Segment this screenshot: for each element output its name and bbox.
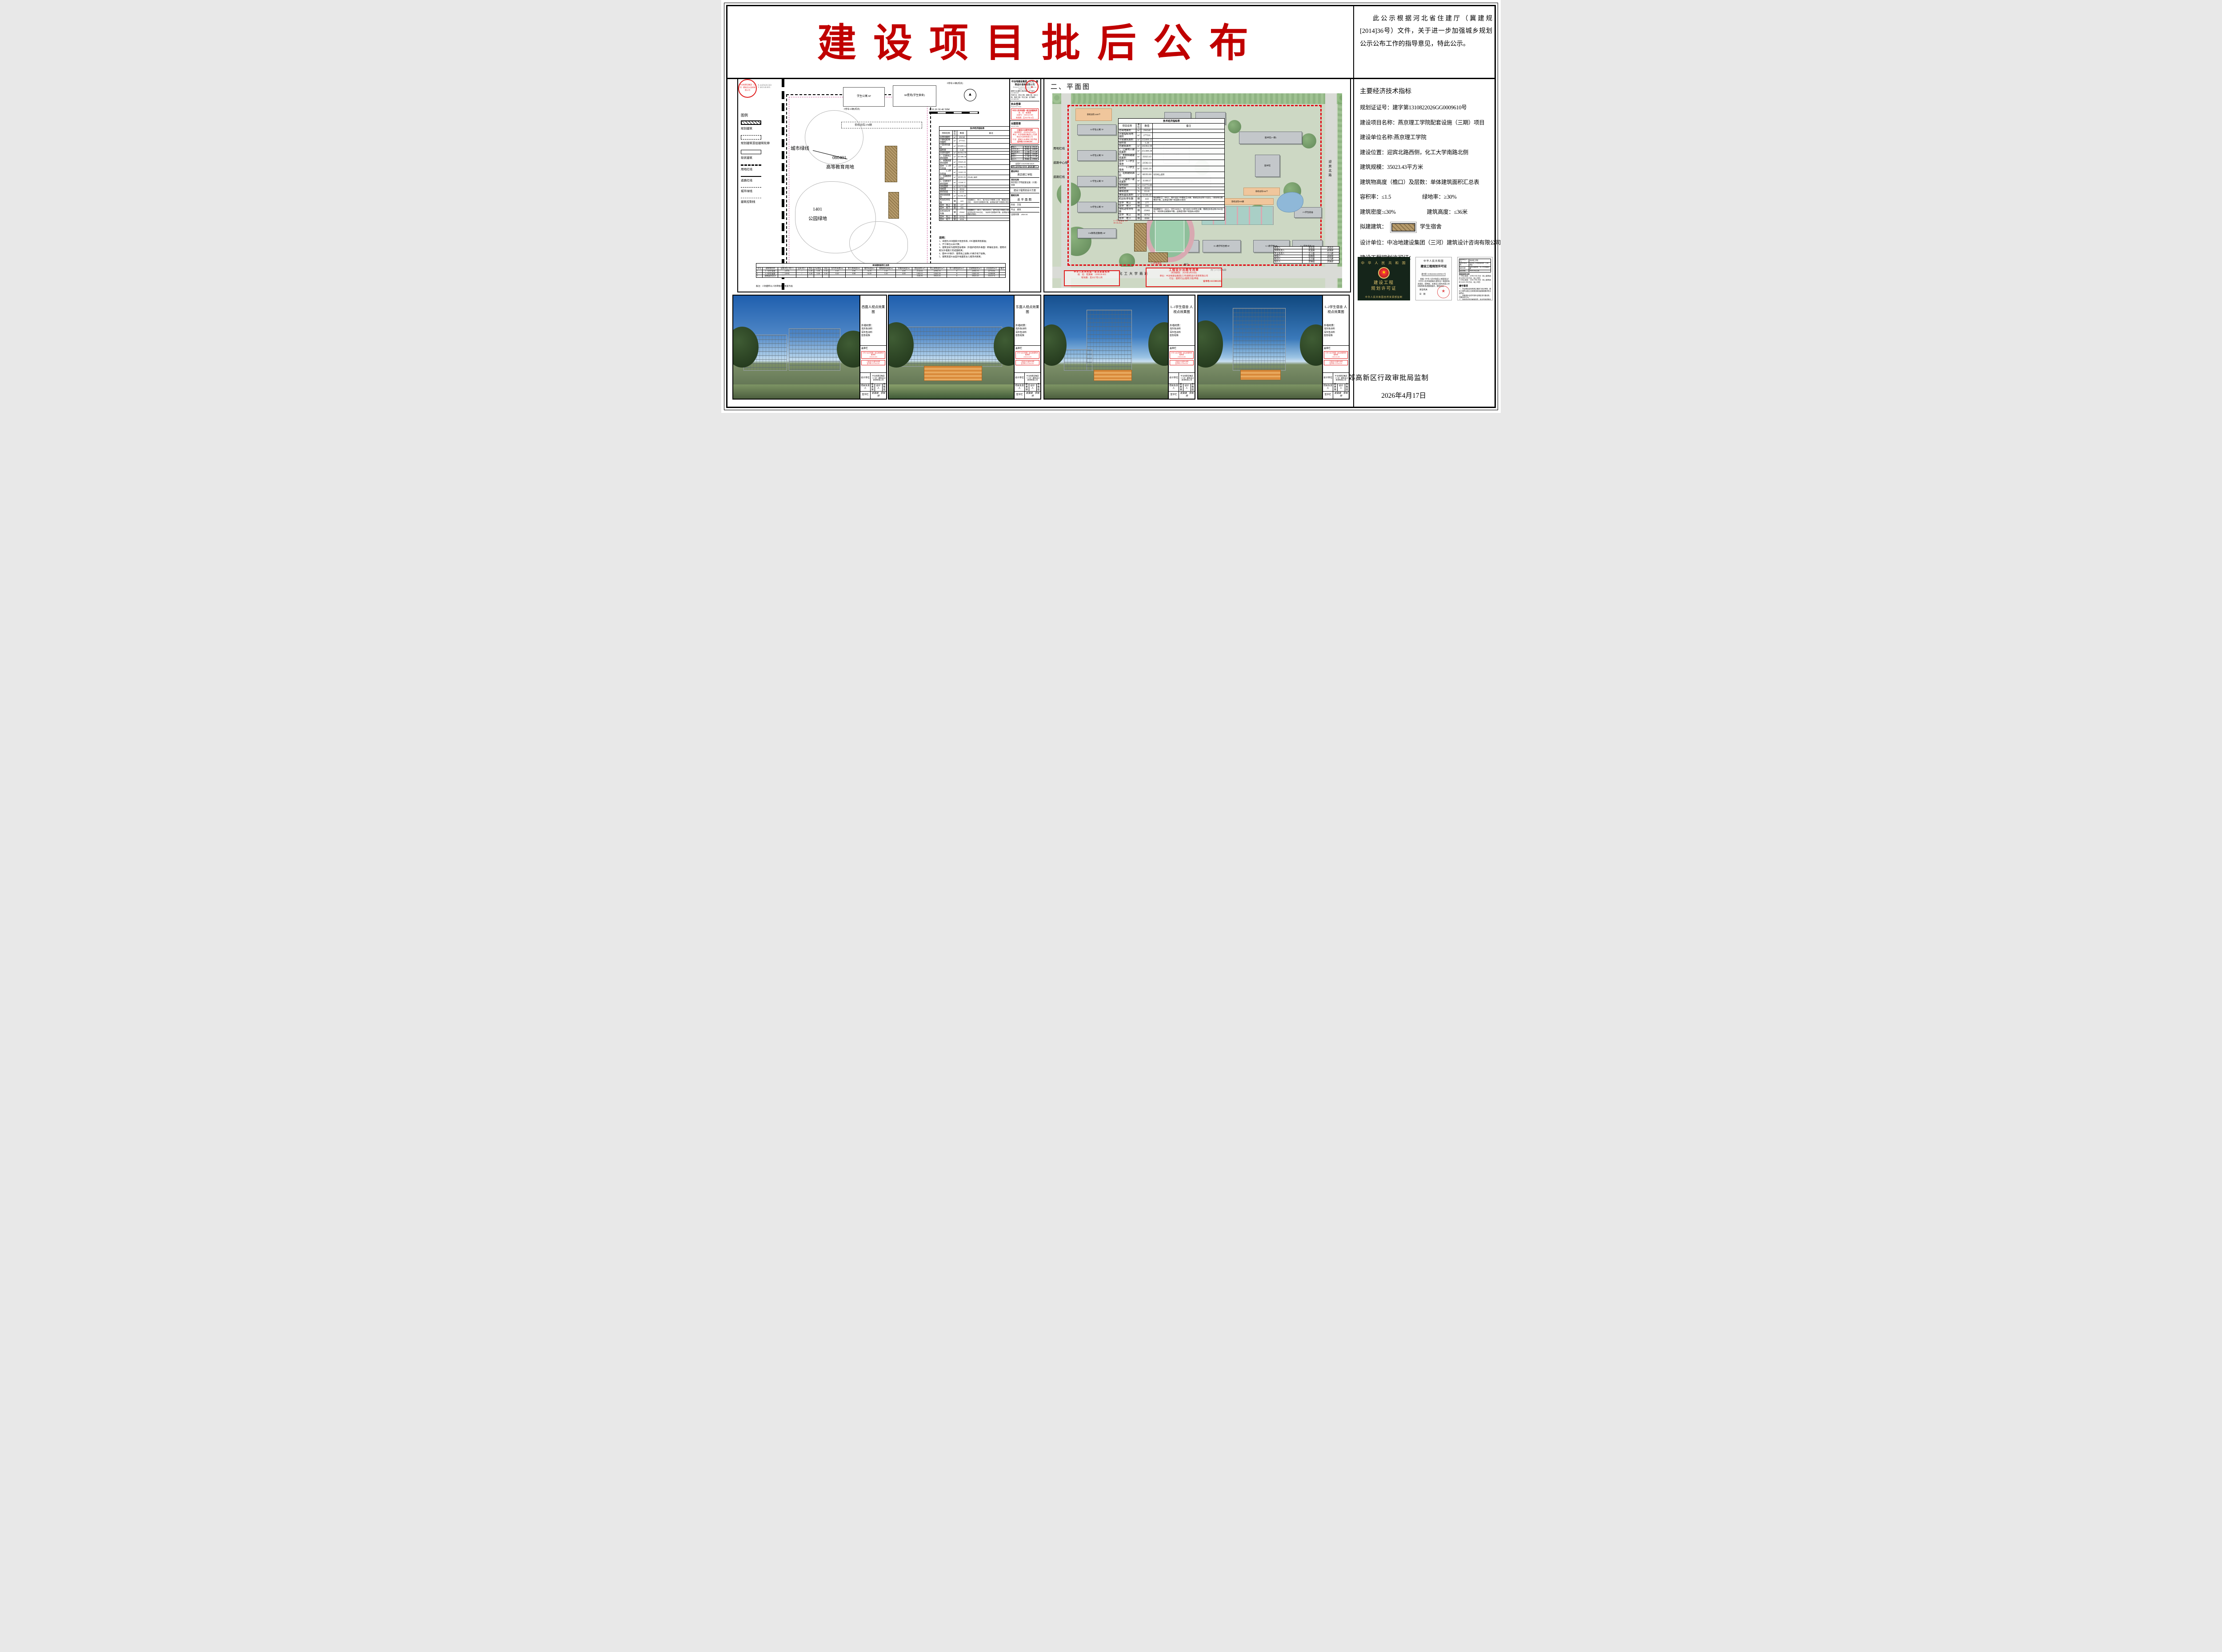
main-indicators-panel: 主要经济技术指标 规划证证号：建字第1310822026GG0009610号 建… — [1360, 86, 1495, 268]
national-emblem-icon: ★ — [1378, 267, 1390, 279]
release-stamp-mini: 工程设计出图专用章证书号:A113001205 — [1170, 360, 1194, 366]
city-green-line-label: 城市绿线 — [791, 145, 809, 152]
architect-stamp-plan: 中华人民共和国一级注册建筑师 姓 名：崔美婧 1300120-005 有效期：至… — [1064, 270, 1120, 286]
rendering-photo — [1198, 296, 1322, 399]
orange-steps — [924, 366, 982, 381]
proposed-label: 拟建建筑： — [1360, 224, 1387, 230]
master-plan: 非机动车1400个 A5学生公寓 7F A6学生公寓 7F A7学生公寓 7F … — [1052, 93, 1342, 288]
release-stamp-mini: 工程设计出图专用章证书号:A113001205 — [861, 360, 885, 366]
countersign-block: 会签栏 COUNTER SIGN 建筑结构给排水暖通电气 — [1010, 162, 1039, 169]
rendering-caption: 东面人视点效果图 外墙材质：浅灰色涂料深灰色涂料蓝色铝板 盖章栏 中华人民共和国… — [1014, 296, 1040, 399]
architect-stamp-mini: 中华人民共和国一级注册建筑师崔美婧1300120-005 — [1324, 351, 1348, 359]
bld-jingyuan: 11#静苑(后勤楼) 6F — [1077, 228, 1116, 238]
soccer-field — [1155, 216, 1184, 252]
building-mass — [789, 328, 840, 371]
proposed-building-L2 — [888, 192, 899, 219]
south-road-label: 化工大学南路 — [1119, 271, 1150, 276]
roadline-label: 道路红线 — [1053, 174, 1065, 179]
release-stamp-mini: 工程设计出图专用章证书号:A113001205 — [1324, 360, 1348, 366]
green-belt-north — [1052, 93, 1342, 104]
discipline-row: 专业 建筑 — [1010, 208, 1039, 212]
parcel-use-label: 高等教育用地 — [826, 164, 854, 170]
phase-row: 阶段 方案 — [1010, 203, 1039, 208]
design-institute-seal: 中冶地建设集团（三河）建筑设计咨询有限公司 — [738, 79, 757, 98]
park-code-label: 1401 — [813, 207, 822, 212]
rendering-east: 东面人视点效果图 外墙材质：浅灰色涂料深灰色涂料蓝色铝板 盖章栏 中华人民共和国… — [888, 295, 1041, 400]
supervisor-line: 燕郊高新区行政审批局监制 — [1341, 372, 1429, 382]
tree — [1300, 324, 1322, 366]
rendering-photo — [1044, 296, 1168, 399]
project-name: 建设项目名称：燕京理工学院配套设施（三期）项目 — [1360, 118, 1495, 126]
cover-footer: 中华人民共和国自然资源部监制 — [1358, 296, 1410, 299]
legend-swatch-dashed — [741, 135, 761, 140]
building-summary-table: 单体建筑面积汇总表序号建筑物名称层数(地上/地下)层高:地下首层标准层顶层室内外… — [756, 263, 1006, 278]
notes-block: 说明： 1、本图为2000国家大地坐标系, 1985国家高程基准； 2、尺寸单位… — [939, 236, 1007, 258]
notice-paragraph: 此公示根据河北省住建厅（冀建规[2014]36号）文件，关于进一步加强城乡规划公… — [1360, 12, 1492, 50]
indicators-heading: 主要经济技术指标 — [1360, 86, 1495, 96]
right-panel-divider — [1353, 5, 1354, 408]
cover-country: 中 华 人 民 共 和 国 — [1358, 260, 1410, 265]
red-seal-icon: ★ — [1437, 286, 1450, 298]
bike-parking-566: 非机动车566个 — [1243, 188, 1280, 196]
rendering-photo — [733, 296, 859, 399]
summary-note: 备注：人防面积以人防审批部门批复为准 — [756, 285, 793, 288]
building-scale: 建筑规模：35023.43平方米 — [1360, 162, 1495, 171]
legend-item: 城市绿线 — [741, 187, 783, 193]
bld-A8: A8学生公寓 7F — [1077, 202, 1116, 212]
park-use-label: 公园绿地 — [808, 215, 827, 222]
release-stamp-plan: 工程设计出图专用章 (有效期至：2026年4月30日) 单位：中冶地建设集团(三… — [1146, 268, 1222, 287]
proposed-line: 拟建建筑：学生宿舍 — [1360, 222, 1495, 232]
legend-title: 图例 — [741, 113, 783, 118]
architect-stamp: 中华人民共和国一级注册建筑师 姓 名：崔美婧 注册号：1300120-005 有… — [1011, 108, 1039, 120]
countersign-cells: 建筑结构给排水暖通电气 — [1011, 165, 1039, 168]
proposed-value: 学生宿舍 — [1420, 224, 1442, 230]
site-plan-drawing: X 4429420.583Y 482148.805 图例 规划建筑 规划建筑首层… — [737, 78, 1041, 292]
proposed-L1-building — [1134, 223, 1147, 252]
indicator-table-main: 技术经济指标表项目名称单位数值备注总用地面积m²294540计算指标用地面积m²… — [1118, 118, 1225, 220]
page-title: 建设项目批后公布 — [775, 12, 1308, 68]
legend-item: 规划建筑首层建筑轮廓 — [741, 135, 783, 145]
coord-y: Y 482148.805 — [758, 87, 770, 89]
release-stamp-block: 出图签章 Release Stamp 工程设计出图专用章 (有效期至：2026年… — [1010, 121, 1039, 145]
far: 容积率：≤1.5 — [1360, 194, 1391, 200]
bld-library: 图书馆 — [1255, 155, 1280, 177]
architect-stamp-mini: 中华人民共和国一级注册建筑师崔美婧1300120-005 — [1015, 351, 1039, 359]
project-block: 项目名称燕京理工学院配套设施（三期）项目 — [1010, 178, 1039, 188]
registration-stamp-block: 执业签章 Registration Stamp 中华人民共和国一级注册建筑师 姓… — [1010, 101, 1039, 121]
legend-item: 道路红线 — [741, 176, 783, 182]
owner-block: 建设单位燕京理工学院 — [1010, 169, 1039, 178]
redline-label: 用地红线 — [1053, 146, 1065, 150]
gate-label: 校门 — [1184, 263, 1188, 266]
proposed-L2-building — [1148, 252, 1168, 262]
bld-library1: 图书馆(一期) — [1239, 132, 1302, 144]
building-tower — [1233, 308, 1286, 371]
company-block: ★ 中冶地建设集团（三河）建筑设计咨询有限公司 Zhongyedi Constr… — [1010, 79, 1039, 101]
ground — [1198, 384, 1322, 399]
legend-swatch-hatch — [741, 120, 761, 125]
building-mass — [901, 327, 1002, 367]
architect-stamp-mini: 中华人民共和国一级注册建筑师崔美婧1300120-005 — [861, 351, 885, 359]
legend-swatch-greenline — [741, 187, 761, 188]
density: 建筑密度:≤30% — [1360, 209, 1396, 215]
density-height-pair: 建筑密度:≤30%建筑高度：≤36米 — [1360, 207, 1495, 216]
legend-swatch-redline — [741, 164, 761, 166]
ground — [733, 384, 859, 399]
bld-A6: A6学生公寓 7F — [1077, 150, 1116, 161]
far-green-pair: 容积率：≤1.5绿地率：≥30% — [1360, 192, 1495, 200]
signature-table: 审定人李志忠李志忠项目负责人崔美婧崔美婧专业负责人王小晨王小晨审核人张晓梅张晓梅… — [1010, 145, 1039, 162]
rendering-caption: 西面人视点效果图 外墙材质：浅灰色涂料深灰色涂料蓝色铝板 盖章栏 中华人民共和国… — [859, 296, 886, 399]
bld-A5: A5学生公寓 7F — [1077, 124, 1116, 135]
rendering-caption: L-2学生宿舍 人视点效果图 外墙材质：浅灰色涂料深灰色涂料蓝色铝板 盖章栏 中… — [1322, 296, 1349, 399]
parking18-label: P停车18辆(现状) — [844, 108, 860, 111]
release-stamp: 工程设计出图专用章 (有效期至：2026年4月30日) 单位：中冶地建设集团(三… — [1011, 128, 1039, 144]
orange-steps — [1094, 370, 1131, 381]
bld-E2: E-2教学综合楼 8F — [1203, 240, 1241, 252]
legend-item: 建筑控制线 — [741, 198, 783, 204]
rendering-L2: L-2学生宿舍 人视点效果图 外墙材质：浅灰色涂料深灰色涂料蓝色铝板 盖章栏 中… — [1197, 295, 1350, 400]
north-compass-icon — [964, 89, 976, 101]
contour-line — [849, 221, 908, 267]
company-round-stamp: ★ — [1025, 80, 1039, 93]
rendering-west: 西面人视点效果图 外墙材质：浅灰色涂料深灰色涂料蓝色铝板 盖章栏 中华人民共和国… — [732, 295, 887, 400]
existing-dorm-building: 学生公寓 6F — [843, 87, 885, 107]
cover-title: 建设工程规划许可证 — [1358, 280, 1410, 292]
tree — [1148, 322, 1168, 365]
terms-info-table: 建设单位(个人)燕京理工学院建设项目名称燕京理工学院配套设施（三期）项目建设位置… — [1459, 259, 1491, 272]
bld-A7: A7学生公寓 7F — [1077, 176, 1116, 187]
green-rate: 绿地率：≥30% — [1422, 194, 1456, 200]
master-plan-panel: 二、平面图 非机动车1400个 A5学生公寓 7F A6学生公寓 7F A7学生… — [1043, 78, 1351, 292]
parking10-label: P停车10辆(现状) — [947, 82, 963, 85]
title-block: ★ 中冶地建设集团（三河）建筑设计咨询有限公司 Zhongyedi Constr… — [1009, 79, 1039, 292]
height-floors: 建筑物高度（檐口）及层数：单体建筑面积汇总表 — [1360, 177, 1495, 186]
drawing-name-block: 图纸名称总平面图 — [1010, 193, 1039, 203]
plot-date-row: 出图日期 2026.04 — [1010, 212, 1039, 217]
announcement-poster: 建设项目批后公布 此公示根据河北省住建厅（冀建规[2014]36号）文件，关于进… — [721, 0, 1501, 413]
release-stamp-mini: 工程设计出图专用章证书号:A113001205 — [1015, 360, 1039, 366]
permit-cover: 中 华 人 民 共 和 国 ★ 建设工程规划许可证 中华人民共和国自然资源部监制 — [1358, 257, 1410, 300]
parcel-code-label: 080401 — [832, 156, 847, 160]
rendering-photo — [889, 296, 1014, 399]
rendering-L1: L-1学生宿舍 人视点效果图 外墙材质：浅灰色涂料深灰色涂料蓝色铝板 盖章栏 中… — [1043, 295, 1195, 400]
xingyuan-building: 8#星苑(学生宿舍) — [893, 85, 936, 107]
building-podium — [1064, 349, 1092, 371]
ground — [1044, 384, 1168, 399]
legend: 图例 规划建筑 规划建筑首层建筑轮廓 现状建筑 用地红线 道路红线 城市绿线 建… — [741, 113, 783, 208]
master-plan-header: 二、平面图 — [1051, 82, 1091, 91]
building-height: 建筑高度：≤36米 — [1427, 209, 1468, 215]
tree — [1198, 320, 1223, 368]
rendering-caption: L-1学生宿舍 人视点效果图 外墙材质：浅灰色涂料深灰色涂料蓝色铝板 盖章栏 中… — [1168, 296, 1195, 399]
L2-label: L-2学生宿舍 — [1151, 262, 1162, 265]
legend-item: 现状建筑 — [741, 150, 783, 160]
proposed-building-L1 — [885, 146, 897, 182]
legend-swatch-solid — [741, 150, 761, 154]
centerline-label: 道路中心线 — [1053, 160, 1068, 164]
plan-signature-table: 审定人李志忠李志忠项目负责人崔美婧崔美婧专业负责人王小晨王小晨审核人张晓梅张晓梅… — [1274, 246, 1339, 264]
building-tower — [1087, 310, 1132, 371]
permit-terms-page: 建设单位(个人)燕京理工学院建设项目名称燕京理工学院配套设施（三期）项目建设位置… — [1457, 257, 1493, 300]
legend-swatch-roadline — [741, 176, 761, 177]
road-redline-bar — [782, 79, 784, 290]
east-road-label: 迎宾北路 — [1328, 160, 1332, 178]
publish-date: 2026年4月17日 — [1381, 390, 1426, 400]
legend-item: 规划建筑 — [741, 120, 783, 130]
orange-steps — [1240, 370, 1281, 380]
proposed-building-swatch — [1391, 223, 1415, 232]
bike-parking-area: 非机动车1400个 — [1075, 108, 1112, 121]
permit-certificates: 中 华 人 民 共 和 国 ★ 建设工程规划许可证 中华人民共和国自然资源部监制… — [1358, 257, 1493, 300]
design-unit: 设计单位：中冶地建设集团（三河）建筑设计咨询有限公司 — [1360, 238, 1495, 246]
bike378-label: 非机动车378辆 — [855, 123, 872, 127]
indicator-table-left: 技术经济指标表项目名称单位数值备注总用地面积m²294540计算指标用地面积m²… — [939, 126, 1015, 221]
legend-item: 用地红线 — [741, 164, 783, 171]
tree — [1044, 324, 1067, 366]
location: 建设位置：迎宾北路西侧，化工大学南路北侧 — [1360, 148, 1495, 156]
ground — [889, 384, 1014, 399]
plan-cert-no: 规划证证号：建字第1310822026GG0009610号 — [1360, 103, 1495, 111]
owner-name: 建设单位名称:燕京理工学院 — [1360, 132, 1495, 141]
scheme-name: 建设工程规划设计方案 — [1010, 188, 1039, 193]
architect-stamp-mini: 中华人民共和国一级注册建筑师崔美婧1300120-005 — [1170, 351, 1194, 359]
permit-page: 中华人民共和国 建设工程规划许可证 建字第 1310822026GG000961… — [1415, 257, 1452, 300]
scale-bar: 0 10 20 30 40 50M — [929, 108, 979, 114]
legend-swatch-controlline — [741, 198, 761, 198]
bike-parking-strip — [841, 122, 922, 128]
